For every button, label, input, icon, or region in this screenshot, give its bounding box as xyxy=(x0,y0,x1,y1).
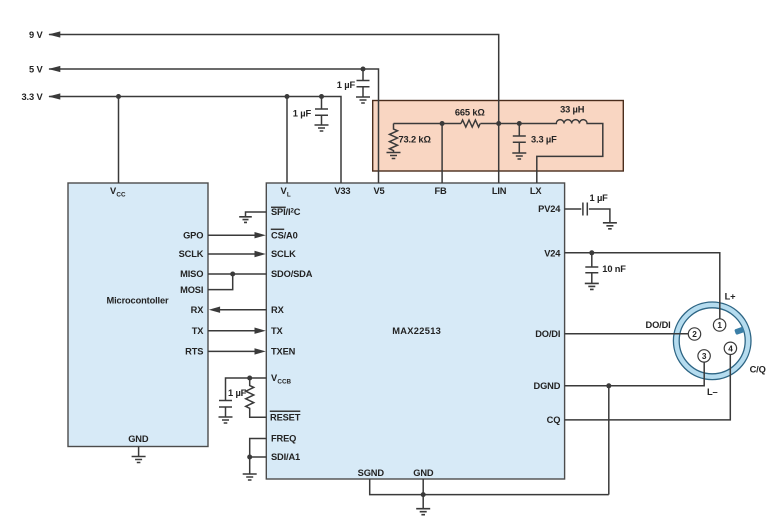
svg-text:TX: TX xyxy=(271,326,284,336)
svg-text:3: 3 xyxy=(702,351,707,361)
svg-text:CS/A0: CS/A0 xyxy=(271,230,298,240)
svg-text:C/Q: C/Q xyxy=(750,364,766,374)
svg-text:3.3 V: 3.3 V xyxy=(22,92,44,102)
svg-text:SDI/A1: SDI/A1 xyxy=(271,452,300,462)
svg-text:MOSI: MOSI xyxy=(180,285,203,295)
svg-text:DO/DI: DO/DI xyxy=(646,320,671,330)
svg-text:L: L xyxy=(287,192,291,199)
svg-text:RESET: RESET xyxy=(270,412,301,422)
svg-text:9 V: 9 V xyxy=(29,30,43,40)
svg-text:Microcontoller: Microcontoller xyxy=(107,296,169,306)
svg-text:1 µF: 1 µF xyxy=(590,193,609,203)
svg-text:SCLK: SCLK xyxy=(179,249,204,259)
svg-text:DO/DI: DO/DI xyxy=(535,329,560,339)
svg-text:L+: L+ xyxy=(725,291,737,301)
svg-text:LX: LX xyxy=(530,186,543,196)
svg-text:DGND: DGND xyxy=(534,381,561,391)
svg-text:V33: V33 xyxy=(334,186,350,196)
svg-text:SCLK: SCLK xyxy=(271,249,296,259)
svg-text:RTS: RTS xyxy=(185,347,203,357)
svg-text:CCB: CCB xyxy=(277,379,291,386)
svg-text:1 µF: 1 µF xyxy=(337,80,356,90)
svg-text:FB: FB xyxy=(434,186,447,196)
svg-text:1 µF: 1 µF xyxy=(293,108,312,118)
svg-text:RX: RX xyxy=(191,305,205,315)
svg-text:LIN: LIN xyxy=(492,186,507,196)
svg-text:TX: TX xyxy=(192,326,205,336)
svg-text:GND: GND xyxy=(413,468,434,478)
svg-text:10 nF: 10 nF xyxy=(602,264,626,274)
svg-text:MAX22513: MAX22513 xyxy=(392,326,441,336)
svg-text:RX: RX xyxy=(271,305,285,315)
svg-text:MISO: MISO xyxy=(180,269,203,279)
svg-text:FREQ: FREQ xyxy=(271,434,296,444)
svg-text:CQ: CQ xyxy=(547,415,561,425)
svg-text:V5: V5 xyxy=(373,186,384,196)
svg-text:2: 2 xyxy=(692,329,697,339)
svg-text:SDO/SDA: SDO/SDA xyxy=(271,269,313,279)
svg-text:GPO: GPO xyxy=(183,230,203,240)
svg-text:665 kΩ: 665 kΩ xyxy=(455,107,486,117)
svg-text:73.2 kΩ: 73.2 kΩ xyxy=(399,135,432,145)
svg-text:33 µH: 33 µH xyxy=(560,105,585,115)
svg-text:V24: V24 xyxy=(544,249,561,259)
svg-text:3.3 µF: 3.3 µF xyxy=(531,134,557,144)
svg-text:1 µF: 1 µF xyxy=(228,388,247,398)
svg-text:4: 4 xyxy=(728,343,733,353)
svg-text:SPI/I2C: SPI/I2C xyxy=(271,207,301,217)
svg-text:SGND: SGND xyxy=(358,468,385,478)
svg-text:TXEN: TXEN xyxy=(271,347,296,357)
svg-text:PV24: PV24 xyxy=(538,204,561,214)
svg-text:GND: GND xyxy=(128,434,149,444)
svg-text:CC: CC xyxy=(116,192,126,199)
svg-text:1: 1 xyxy=(717,320,722,330)
svg-text:L–: L– xyxy=(707,387,718,397)
svg-text:5 V: 5 V xyxy=(29,64,43,74)
